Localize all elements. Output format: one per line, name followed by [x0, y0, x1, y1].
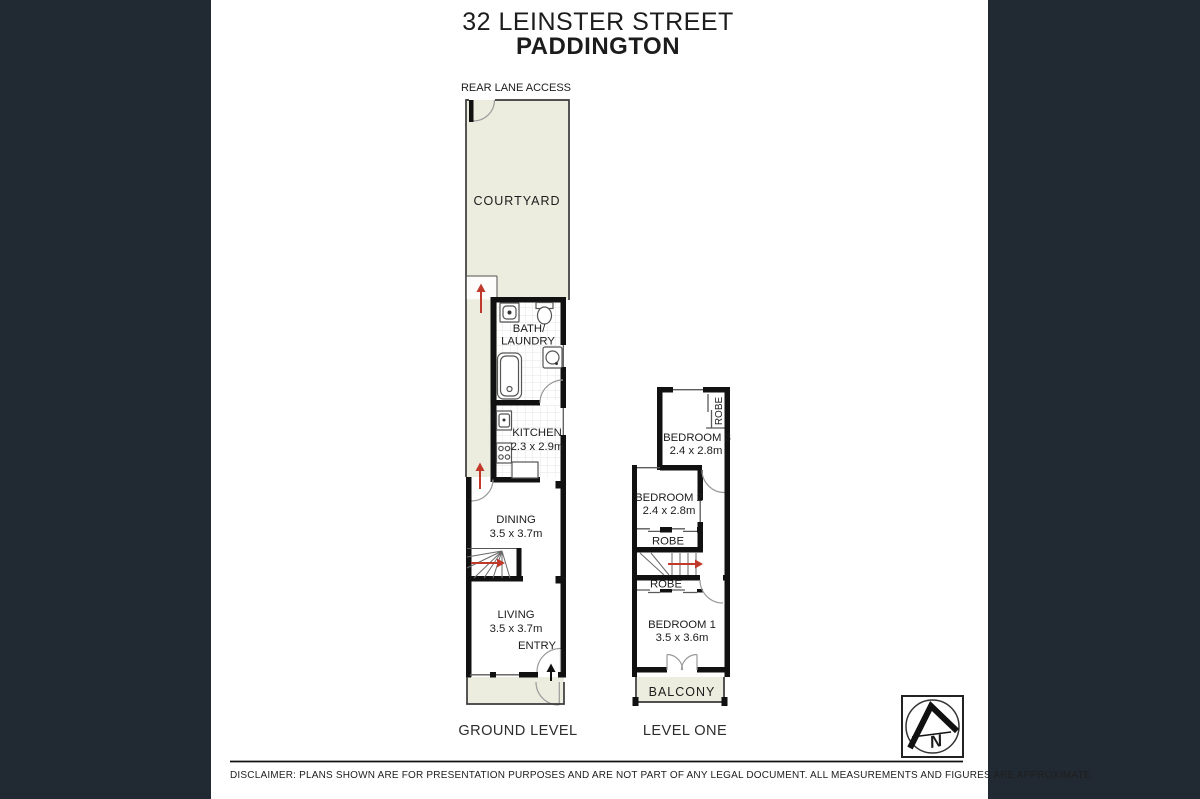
rear-lane-access-label: REAR LANE ACCESS [461, 82, 571, 94]
kitchen-label: KITCHEN [512, 427, 562, 439]
living-label: LIVING [497, 609, 534, 621]
bedroom1-label: BEDROOM 1 [648, 619, 716, 631]
bed1-door [700, 580, 723, 603]
ground-stairs [467, 548, 522, 578]
stove-cooktop [497, 443, 512, 463]
kitchen-dims: 2.3 x 2.9m [511, 441, 564, 453]
kitchen-sink [497, 411, 512, 430]
entry-label: ENTRY [518, 640, 557, 652]
footer: DISCLAIMER: PLANS SHOWN ARE FOR PRESENTA… [230, 762, 1094, 782]
bed2-robe-label: ROBE [652, 536, 684, 548]
laundry-tub [543, 347, 562, 368]
balcony-french-doors [667, 655, 697, 671]
dining-label: DINING [496, 514, 536, 526]
ground-level-caption: GROUND LEVEL [458, 723, 577, 739]
address-line2: PADDINGTON [516, 33, 680, 60]
ground-level-plan: REAR LANE ACCESS COURTYARD [458, 82, 577, 739]
level-one-caption: LEVEL ONE [643, 723, 727, 739]
courtyard-label: COURTYARD [473, 194, 560, 208]
bath-label-line1: BATH/ [513, 323, 546, 335]
bed1-robe-label: ROBE [650, 579, 682, 591]
level-one-stairs [640, 553, 703, 575]
bedroom2-label: BEDROOM 2 [635, 492, 703, 504]
bedroom3-label: BEDROOM 3 [663, 432, 731, 444]
vanity-sink [500, 303, 519, 322]
level-one-plan: BEDROOM 3 2.4 x 2.8m ROBE BEDROOM 2 2.4 … [632, 387, 731, 739]
address-line1: 32 LEINSTER STREET [462, 8, 734, 36]
kitchen-bench [512, 462, 538, 478]
header: 32 LEINSTER STREET PADDINGTON [462, 8, 734, 60]
disclaimer-text: DISCLAIMER: PLANS SHOWN ARE FOR PRESENTA… [230, 770, 1094, 781]
bedroom1-dims: 3.5 x 3.6m [656, 632, 709, 644]
bed3-robe-label: ROBE [714, 397, 725, 426]
bedroom2-dims: 2.4 x 2.8m [643, 505, 696, 517]
living-dims: 3.5 x 3.7m [490, 623, 543, 635]
floorplan-page: 32 LEINSTER STREET PADDINGTON REAR LANE … [0, 0, 1200, 799]
dining-dims: 3.5 x 3.7m [490, 528, 543, 540]
floor-plan-canvas: 32 LEINSTER STREET PADDINGTON REAR LANE … [0, 0, 1200, 799]
north-compass: N [902, 696, 963, 757]
bathtub [498, 353, 522, 399]
bedroom3-dims: 2.4 x 2.8m [670, 445, 723, 457]
bed3-door [702, 470, 725, 493]
bath-label-line2: LAUNDRY [501, 336, 555, 348]
balcony-label: BALCONY [649, 685, 716, 699]
front-porch-area [467, 677, 564, 703]
toilet [536, 303, 553, 325]
